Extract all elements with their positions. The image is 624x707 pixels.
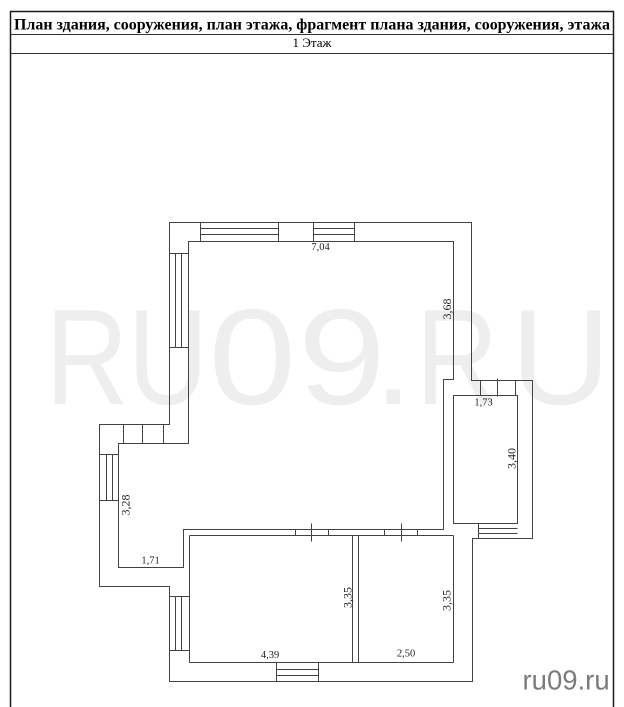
svg-text:ru09.ru: ru09.ru: [523, 665, 610, 696]
svg-text:План здания, сооружения, план: План здания, сооружения, план этажа, фра…: [14, 17, 610, 34]
svg-text:3,35: 3,35: [440, 590, 454, 611]
svg-text:1,71: 1,71: [141, 556, 159, 567]
svg-text:0: 0: [209, 282, 297, 434]
svg-text:R: R: [46, 281, 129, 433]
svg-text:U: U: [511, 282, 611, 433]
svg-text:1 Этаж: 1 Этаж: [293, 35, 333, 50]
svg-text:.: .: [373, 281, 413, 433]
svg-text:3,35: 3,35: [341, 587, 355, 608]
svg-text:7,04: 7,04: [311, 242, 330, 253]
svg-text:3,68: 3,68: [440, 299, 454, 320]
svg-text:2,50: 2,50: [397, 649, 415, 660]
svg-text:1,73: 1,73: [474, 398, 492, 409]
svg-text:3,28: 3,28: [119, 495, 133, 516]
svg-text:3,40: 3,40: [505, 448, 519, 469]
svg-text:U: U: [128, 282, 208, 433]
svg-text:4,39: 4,39: [261, 650, 279, 661]
svg-text:R: R: [416, 281, 499, 433]
